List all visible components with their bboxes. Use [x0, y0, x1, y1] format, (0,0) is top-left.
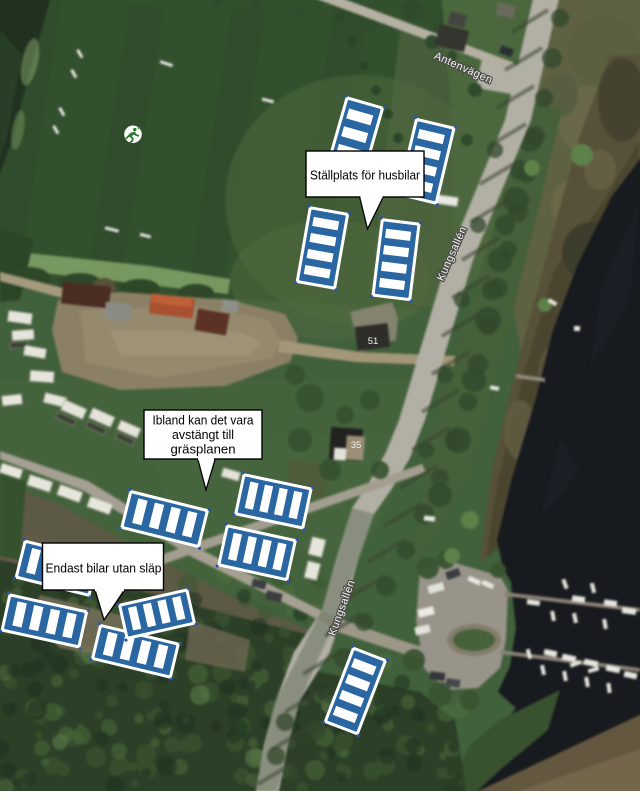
svg-text:51: 51 [368, 336, 379, 347]
svg-text:Ställplats för husbilar: Ställplats för husbilar [310, 168, 421, 183]
svg-text:Kungsallén: Kungsallén [327, 578, 358, 637]
svg-text:Endast bilar utan släp: Endast bilar utan släp [46, 561, 162, 576]
svg-text:Kungsallén: Kungsallén [435, 225, 470, 283]
svg-text:avstängt till: avstängt till [172, 428, 234, 442]
svg-text:35: 35 [351, 440, 362, 451]
svg-text:Antenvägen: Antenvägen [432, 50, 494, 86]
svg-text:gräsplanen: gräsplanen [171, 443, 236, 457]
svg-text:Ibland kan det vara: Ibland kan det vara [153, 414, 254, 428]
